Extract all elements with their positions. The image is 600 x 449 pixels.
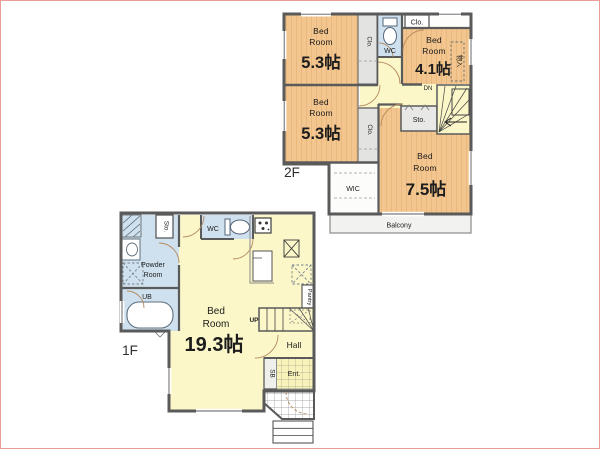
- bedroom-d-size: 7.5帖: [406, 179, 447, 199]
- bathtub-icon: [127, 302, 173, 328]
- wc-1f-label: WC: [207, 226, 219, 233]
- entrance-label: Ent.: [288, 371, 301, 378]
- bedroom-b-size: 5.3帖: [301, 123, 341, 143]
- bedroom-a-name2: Room: [309, 37, 332, 47]
- floor-2f-label: 2F: [284, 165, 300, 180]
- toilet-tank-icon: [225, 219, 230, 235]
- powder-room-label1: Powder: [141, 262, 165, 269]
- storage-1f-label: Sto.: [163, 221, 170, 232]
- stairs-up: [259, 308, 314, 331]
- stairs-up-label: UP: [249, 317, 259, 324]
- stairs-dn-label: DN: [424, 86, 433, 92]
- ub-label: UB: [142, 294, 152, 301]
- pantry-label: Pantry: [306, 289, 312, 306]
- floor-plan-svg: Bed Room 5.3帖 Bed Room 5.3帖 Bed Room 4.1…: [1, 1, 600, 449]
- bedroom-c-size: 4.1帖: [415, 60, 451, 78]
- bedroom-b-name2: Room: [309, 108, 332, 118]
- bedroom-1f-name1: Bed: [207, 306, 225, 317]
- closet-top-label: Clo.: [411, 20, 424, 27]
- hall-label: Hall: [287, 340, 302, 350]
- storage-2f-label: Sto.: [413, 117, 426, 124]
- closet-b-label: Clo.: [366, 124, 373, 135]
- bedroom-c-name2: Room: [422, 46, 445, 56]
- entry-steps: [273, 421, 313, 443]
- floor-plan-page: Bed Room 5.3帖 Bed Room 5.3帖 Bed Room 4.1…: [0, 0, 600, 449]
- stairs-down: [437, 85, 470, 134]
- bedroom-a-name1: Bed: [313, 26, 329, 36]
- bedroom-1f-size: 19.3帖: [185, 333, 244, 356]
- stove-icon: [255, 218, 271, 233]
- bedroom-a-size: 5.3帖: [301, 52, 341, 72]
- powder-room-label2: Room: [144, 272, 163, 279]
- floor-1f: Bed Room 19.3帖 WC Sto. Powder Room UB UP…: [120, 213, 314, 443]
- shoe-box-label: SB: [269, 369, 276, 377]
- balcony-label: Balcony: [387, 223, 412, 230]
- bedroom-b-name1: Bed: [313, 97, 329, 107]
- floor-1f-label: 1F: [122, 343, 138, 358]
- porch-floor: [264, 391, 314, 419]
- washbasin-icon: [122, 239, 140, 260]
- sink-icon: [253, 251, 272, 281]
- bedroom-1f-name2: Room: [203, 319, 230, 330]
- hall-2f-floor: [377, 57, 402, 84]
- closet-kanji-label: 物入: [456, 55, 465, 68]
- shelf-hatch: [122, 215, 141, 237]
- wic-label: WIC: [346, 186, 360, 193]
- toilet-bowl-icon: [231, 220, 250, 234]
- toilet-tank-icon: [383, 18, 397, 26]
- wc-2f-label: WC: [384, 48, 396, 55]
- floor-2f: Bed Room 5.3帖 Bed Room 5.3帖 Bed Room 4.1…: [282, 12, 473, 233]
- closet-a: [358, 15, 377, 84]
- bedroom-c-name1: Bed: [426, 35, 442, 45]
- closet-a-label: Clo.: [366, 36, 373, 47]
- toilet-bowl-icon: [384, 28, 397, 45]
- bedroom-d-name1: Bed: [417, 151, 433, 161]
- bedroom-d-name2: Room: [413, 163, 436, 173]
